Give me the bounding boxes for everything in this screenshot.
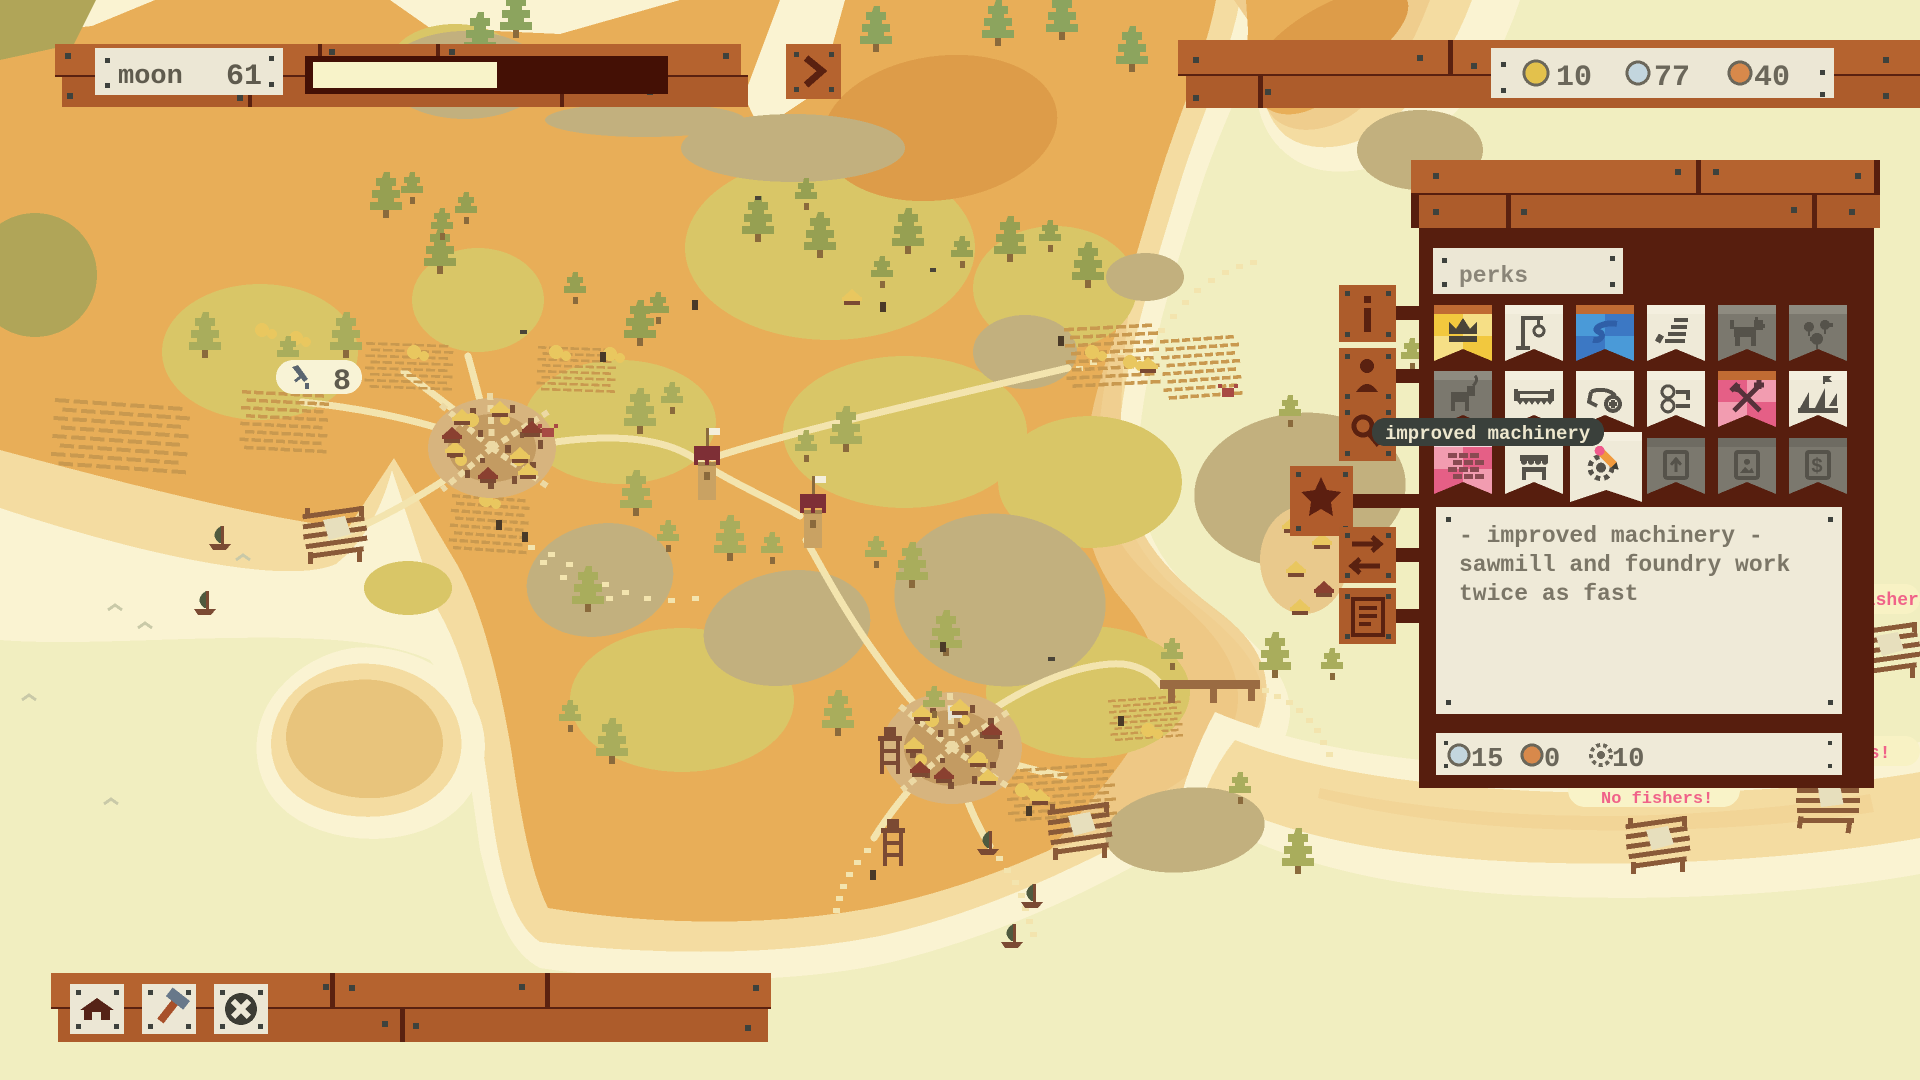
svg-text:sawmill and foundry work: sawmill and foundry work bbox=[1459, 552, 1790, 578]
svg-text:- improved machinery -: - improved machinery - bbox=[1459, 523, 1763, 549]
svg-text:40: 40 bbox=[1754, 61, 1790, 95]
svg-text:61: 61 bbox=[226, 60, 262, 94]
svg-text:improved machinery: improved machinery bbox=[1385, 423, 1591, 445]
svg-text:$: $ bbox=[1811, 456, 1823, 479]
svg-text:perks: perks bbox=[1459, 263, 1528, 289]
svg-text:twice as fast: twice as fast bbox=[1459, 581, 1638, 607]
svg-text:moon: moon bbox=[118, 62, 183, 92]
svg-text:8: 8 bbox=[333, 365, 351, 399]
svg-text:10: 10 bbox=[1556, 61, 1592, 95]
svg-text:77: 77 bbox=[1654, 61, 1690, 95]
svg-text:15: 15 bbox=[1471, 745, 1503, 775]
svg-text:0: 0 bbox=[1544, 745, 1560, 775]
svg-text:10: 10 bbox=[1612, 745, 1644, 775]
svg-text:No fishers!: No fishers! bbox=[1601, 790, 1713, 809]
